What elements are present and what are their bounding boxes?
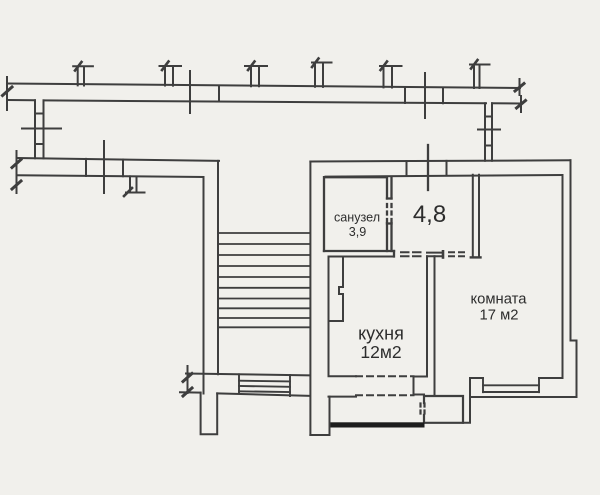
- svg-text:3,9: 3,9: [349, 225, 367, 239]
- svg-text:кухня: кухня: [358, 324, 404, 344]
- svg-text:12м2: 12м2: [360, 342, 401, 362]
- svg-text:17 м2: 17 м2: [480, 308, 519, 324]
- svg-text:4,8: 4,8: [413, 201, 446, 228]
- svg-text:комната: комната: [471, 292, 528, 308]
- svg-text:санузел: санузел: [334, 211, 380, 225]
